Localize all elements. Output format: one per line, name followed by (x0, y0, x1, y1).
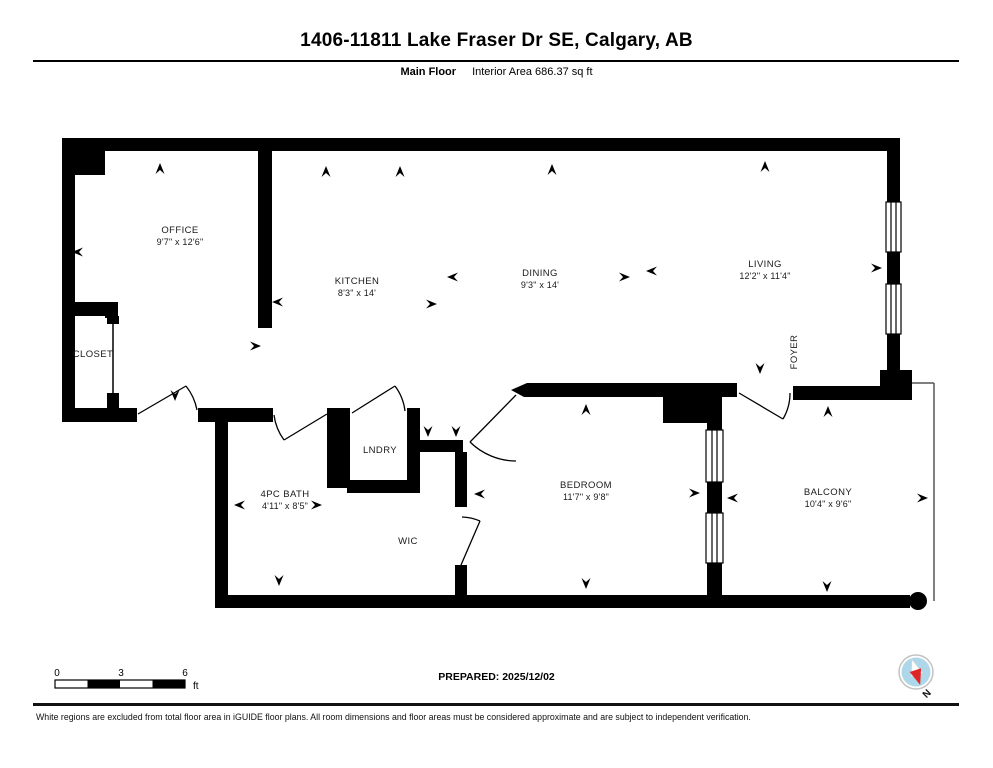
room-label-kitchen: KITCHEN (335, 276, 380, 287)
room-dims-bath: 4'11" x 8'5" (262, 501, 308, 511)
compass-north-label: N (921, 688, 934, 701)
room-dims-office: 9'7" x 12'6" (157, 237, 204, 247)
footer-divider (33, 703, 959, 706)
room-dims-living: 12'2" x 11'4" (739, 271, 790, 281)
window (706, 430, 723, 482)
door-swing (470, 395, 516, 461)
floor-plan-page: 1406-11811 Lake Fraser Dr SE, Calgary, A… (0, 0, 993, 768)
walls (62, 138, 912, 608)
door-swing (138, 386, 197, 414)
room-label-office: OFFICE (161, 225, 198, 236)
room-dims-balcony: 10'4" x 9'6" (805, 499, 852, 509)
door-swing (739, 393, 790, 419)
room-dims-bedroom: 11'7" x 9'8" (563, 492, 609, 502)
room-label-living: LIVING (748, 259, 782, 270)
door-swing (274, 414, 327, 440)
room-label-foyer: FOYER (789, 335, 800, 370)
room-label-closet: CLOSET (73, 349, 113, 360)
room-label-bath: 4PC BATH (261, 489, 310, 500)
disclaimer-text: White regions are excluded from total fl… (36, 712, 956, 722)
window (706, 513, 723, 563)
room-label-dining: DINING (522, 268, 558, 279)
room-label-wic: WIC (398, 536, 418, 547)
windows (706, 202, 901, 563)
window (886, 202, 901, 252)
room-label-balcony: BALCONY (804, 487, 852, 498)
floor-plan-drawing: OFFICE 9'7" x 12'6" CLOSET KITCHEN 8'3" … (0, 0, 993, 768)
prepared-date: PREPARED: 2025/12/02 (0, 671, 993, 683)
room-label-bedroom: BEDROOM (560, 480, 612, 491)
room-dims-kitchen: 8'3" x 14' (338, 288, 376, 298)
dimension-arrows (72, 161, 928, 592)
balcony-column (909, 592, 927, 610)
balcony-outline (912, 383, 934, 601)
door-swing (461, 517, 480, 565)
door-swing (352, 386, 405, 413)
window (886, 284, 901, 334)
room-label-lndry: LNDRY (363, 445, 397, 456)
room-dims-dining: 9'3" x 14' (521, 280, 559, 290)
